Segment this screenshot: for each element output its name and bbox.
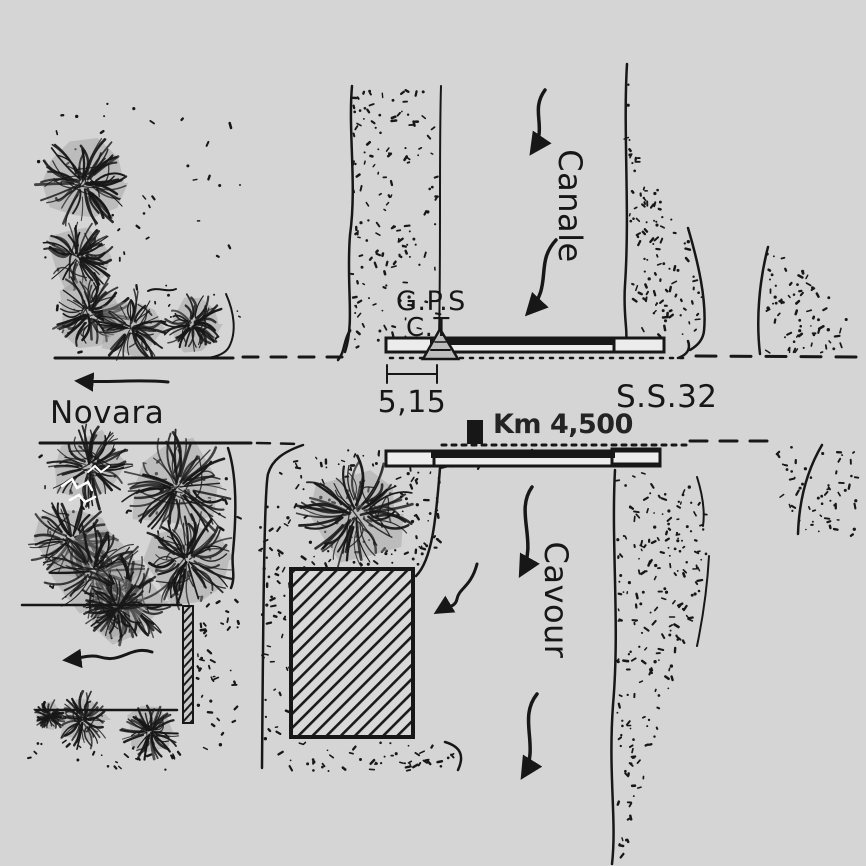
stipple-dot xyxy=(290,760,292,762)
stipple-dot xyxy=(644,571,646,573)
stipple-dot xyxy=(845,318,848,321)
stipple-dot xyxy=(379,194,381,195)
stipple-dot xyxy=(361,266,364,269)
stipple-dot xyxy=(363,118,365,120)
stipple-dot xyxy=(618,802,619,805)
stipple-dot xyxy=(799,325,802,328)
stipple-dot xyxy=(368,90,371,93)
stipple-dot xyxy=(408,745,410,747)
stipple-dot xyxy=(664,319,667,322)
stipple-dot xyxy=(677,538,679,540)
stipple-dot xyxy=(637,594,638,598)
stipple-dot xyxy=(653,312,655,314)
stipple-dot xyxy=(111,214,114,217)
stipple-dot xyxy=(798,329,801,332)
stipple-dot xyxy=(267,646,270,647)
stipple-dot xyxy=(648,719,650,721)
stipple-dot xyxy=(650,612,652,614)
stipple-dot xyxy=(402,245,404,247)
stipple-dot xyxy=(690,502,692,504)
stipple-dot xyxy=(681,502,682,504)
stipple-dot xyxy=(624,484,627,487)
stipple-dot xyxy=(834,529,838,530)
stipple-dot xyxy=(652,243,654,245)
stipple-dot xyxy=(367,142,370,144)
canal-name-bottom-label: Cavour xyxy=(537,542,575,659)
stipple-dot xyxy=(827,489,829,490)
stipple-dot xyxy=(270,596,273,599)
stipple-dot xyxy=(427,520,429,522)
stipple-dot xyxy=(644,299,646,300)
stipple-dot xyxy=(406,90,409,92)
stipple-dot xyxy=(775,320,776,323)
stipple-dot xyxy=(627,840,628,842)
bush-stroke xyxy=(35,183,73,184)
stipple-dot xyxy=(416,479,417,480)
stipple-dot xyxy=(425,211,427,214)
stipple-dot xyxy=(407,114,409,116)
stipple-dot xyxy=(623,535,625,537)
stipple-dot xyxy=(676,295,677,297)
stipple-dot xyxy=(282,635,283,638)
stipple-dot xyxy=(197,678,198,679)
stipple-dot xyxy=(143,212,146,215)
stipple-dot xyxy=(652,541,656,543)
stipple-dot xyxy=(676,532,678,534)
stipple-dot xyxy=(407,770,410,771)
stipple-dot xyxy=(655,304,657,306)
stipple-dot xyxy=(354,312,356,314)
stipple-dot xyxy=(40,743,42,745)
stipple-dot xyxy=(849,485,850,489)
stipple-dot xyxy=(654,291,655,295)
stipple-dot xyxy=(101,131,104,133)
stipple-dot xyxy=(677,506,680,508)
stipple-dot xyxy=(238,517,241,519)
stipple-dot xyxy=(789,504,790,507)
stipple-dot xyxy=(835,336,840,337)
stipple-dot xyxy=(628,581,631,584)
stipple-dot xyxy=(271,606,276,607)
stipple-dot xyxy=(360,564,361,565)
stipple-dot xyxy=(628,153,631,156)
stipple-dot xyxy=(353,297,356,298)
stipple-dot xyxy=(668,547,670,549)
stipple-dot xyxy=(676,269,679,272)
stipple-dot xyxy=(438,761,442,762)
stipple-dot xyxy=(211,677,212,678)
stipple-dot xyxy=(296,468,300,469)
stipple-dot xyxy=(678,604,682,606)
stipple-dot xyxy=(643,232,645,234)
stipple-dot xyxy=(362,455,364,457)
stipple-dot xyxy=(666,539,669,541)
stipple-dot xyxy=(629,139,631,141)
stipple-dot xyxy=(772,303,774,305)
stipple-dot xyxy=(406,767,410,768)
stipple-dot xyxy=(827,521,830,522)
stipple-dot xyxy=(387,262,388,266)
stipple-dot xyxy=(280,473,282,474)
stipple-dot xyxy=(395,752,398,755)
stipple-dot xyxy=(359,109,362,112)
stipple-dot xyxy=(408,162,410,163)
stipple-dot xyxy=(316,457,317,458)
stipple-dot xyxy=(675,635,677,637)
stipple-dot xyxy=(37,160,40,163)
stipple-dot xyxy=(826,345,827,349)
stipple-dot xyxy=(221,623,223,624)
stipple-dot xyxy=(438,514,439,518)
stipple-dot xyxy=(171,755,172,758)
stipple-dot xyxy=(677,570,679,572)
stipple-dot xyxy=(233,721,236,722)
stipple-dot xyxy=(648,277,651,280)
stipple-dot xyxy=(182,119,183,120)
stipple-dot xyxy=(265,716,267,718)
stipple-dot xyxy=(431,153,433,154)
stipple-dot xyxy=(827,328,830,331)
stipple-dot xyxy=(357,281,358,283)
stipple-dot xyxy=(638,787,641,788)
stipple-dot xyxy=(642,591,645,594)
stipple-dot xyxy=(674,548,677,551)
stipple-dot xyxy=(416,91,417,95)
stipple-dot xyxy=(230,670,232,672)
stipple-dot xyxy=(680,314,682,316)
stipple-dot xyxy=(377,148,379,150)
stipple-dot xyxy=(149,205,150,207)
stipple-dot xyxy=(662,262,665,265)
stipple-dot xyxy=(375,263,377,267)
stipple-dot xyxy=(654,202,655,206)
stipple-dot xyxy=(620,745,622,747)
stipple-dot xyxy=(435,198,436,200)
stipple-dot xyxy=(616,538,619,541)
stipple-dot xyxy=(658,694,661,697)
stipple-dot xyxy=(327,770,329,772)
stipple-dot xyxy=(286,711,289,712)
stipple-dot xyxy=(632,191,633,192)
stipple-dot xyxy=(628,818,630,819)
stipple-dot xyxy=(342,461,345,462)
stipple-dot xyxy=(642,473,645,474)
stipple-dot xyxy=(412,238,415,241)
stipple-dot xyxy=(630,214,631,216)
stipple-dot xyxy=(690,530,692,532)
stipple-dot xyxy=(350,753,353,754)
stipple-dot xyxy=(239,316,240,317)
stipple-dot xyxy=(643,197,645,199)
stipple-dot xyxy=(207,604,209,606)
stipple-dot xyxy=(370,156,372,157)
stipple-dot xyxy=(620,620,622,621)
stipple-dot xyxy=(653,192,656,195)
stipple-dot xyxy=(384,287,386,288)
stipple-dot xyxy=(647,292,649,295)
stipple-dot xyxy=(414,122,415,126)
stipple-dot xyxy=(832,347,835,350)
stipple-dot xyxy=(368,297,370,299)
stipple-dot xyxy=(630,728,632,730)
stipple-dot xyxy=(270,529,273,531)
stipple-dot xyxy=(375,127,377,129)
stipple-dot xyxy=(700,525,702,526)
stipple-dot xyxy=(198,666,199,668)
stipple-dot xyxy=(418,264,420,266)
stipple-dot xyxy=(644,271,646,273)
stipple-dot xyxy=(784,465,787,466)
stipple-dot xyxy=(404,147,406,149)
stipple-dot xyxy=(201,624,202,628)
stipple-dot xyxy=(807,311,810,312)
stipple-dot xyxy=(79,352,82,353)
stipple-dot xyxy=(773,255,775,257)
stipple-dot xyxy=(655,690,656,692)
stipple-dot xyxy=(294,461,298,462)
bush-stroke xyxy=(91,323,92,339)
stipple-dot xyxy=(796,311,797,315)
stipple-dot xyxy=(377,254,380,255)
stipple-dot xyxy=(357,332,360,334)
stipple-dot xyxy=(645,285,646,288)
stipple-dot xyxy=(405,497,408,500)
stipple-dot xyxy=(683,641,684,643)
stipple-dot xyxy=(287,668,288,671)
stipple-dot xyxy=(810,476,813,479)
stipple-dot xyxy=(827,296,830,299)
stipple-dot xyxy=(669,555,671,557)
stipple-dot xyxy=(417,472,419,474)
stipple-dot xyxy=(810,325,812,327)
stipple-dot xyxy=(431,186,434,189)
stipple-dot xyxy=(620,845,624,846)
stipple-dot xyxy=(419,148,421,149)
stipple-dot xyxy=(683,573,684,576)
stipple-dot xyxy=(667,688,669,690)
site-sketch-canvas: G.P.S C.T 5,15 S.S.32 Novara Km 4,500 Ca… xyxy=(0,0,866,866)
stipple-dot xyxy=(695,540,697,541)
stipple-dot xyxy=(796,283,799,286)
stipple-dot xyxy=(775,302,778,305)
stipple-dot xyxy=(627,694,629,696)
stipple-dot xyxy=(616,712,618,714)
stipple-dot xyxy=(447,757,450,760)
stipple-dot xyxy=(670,564,671,568)
stipple-dot xyxy=(697,291,700,294)
stipple-dot xyxy=(37,742,40,745)
stipple-dot xyxy=(357,346,359,347)
stipple-dot xyxy=(398,254,400,256)
stipple-dot xyxy=(421,548,425,549)
stipple-dot xyxy=(428,188,431,191)
stipple-dot xyxy=(774,296,777,299)
stipple-dot xyxy=(209,666,210,669)
stipple-dot xyxy=(664,493,667,496)
stipple-dot xyxy=(695,329,697,330)
stipple-dot xyxy=(656,189,659,192)
stipple-dot xyxy=(646,745,648,746)
stipple-dot xyxy=(643,717,645,718)
hatched-building xyxy=(291,569,413,737)
stipple-dot xyxy=(276,574,278,575)
canal-name-top-label: Canale xyxy=(551,149,589,262)
stipple-dot xyxy=(347,449,349,451)
stipple-dot xyxy=(619,574,622,577)
stipple-dot xyxy=(632,749,633,753)
stipple-dot xyxy=(668,268,670,270)
stipple-dot xyxy=(692,276,694,278)
stipple-dot xyxy=(618,581,620,583)
stipple-dot xyxy=(616,480,619,481)
stipple-dot xyxy=(360,255,363,256)
stipple-dot xyxy=(401,494,403,495)
stipple-dot xyxy=(380,762,382,764)
stipple-dot xyxy=(76,759,79,762)
stipple-dot xyxy=(389,195,390,197)
stipple-dot xyxy=(638,558,640,560)
stipple-dot xyxy=(201,630,205,631)
stipple-dot xyxy=(405,226,410,227)
stipple-dot xyxy=(363,92,364,94)
stipple-dot xyxy=(809,507,810,509)
stipple-dot xyxy=(165,285,167,287)
stipple-dot xyxy=(434,223,436,225)
stipple-dot xyxy=(682,333,684,335)
stipple-dot xyxy=(649,561,651,565)
stipple-dot xyxy=(397,230,400,231)
stipple-dot xyxy=(681,300,682,301)
stipple-dot xyxy=(353,111,356,114)
stipple-dot xyxy=(383,254,384,256)
stipple-dot xyxy=(641,572,644,574)
stipple-dot xyxy=(784,336,786,338)
stipple-dot xyxy=(391,195,392,197)
stipple-dot xyxy=(222,733,223,735)
stipple-dot xyxy=(391,562,393,564)
stipple-dot xyxy=(106,103,108,105)
stipple-dot xyxy=(635,207,637,208)
stipple-dot xyxy=(212,724,214,726)
stipple-dot xyxy=(669,668,670,670)
ct-station-label: C.T xyxy=(406,313,450,343)
stipple-dot xyxy=(279,553,280,556)
stipple-dot xyxy=(790,446,793,449)
stipple-dot xyxy=(670,287,671,291)
stipple-dot xyxy=(354,134,355,137)
stipple-dot xyxy=(666,532,667,535)
stipple-dot xyxy=(853,528,856,531)
stipple-dot xyxy=(692,301,693,304)
stipple-dot xyxy=(208,176,209,180)
stipple-dot xyxy=(361,186,362,191)
stipple-dot xyxy=(655,221,657,223)
stipple-dot xyxy=(820,515,821,516)
stipple-dot xyxy=(803,347,805,349)
stipple-dot xyxy=(649,492,651,494)
stipple-dot xyxy=(855,477,859,478)
stipple-dot xyxy=(813,317,814,319)
stipple-dot xyxy=(796,301,799,303)
stipple-dot xyxy=(663,587,666,590)
stipple-dot xyxy=(213,294,215,296)
stipple-dot xyxy=(217,256,219,257)
stipple-dot xyxy=(277,567,279,569)
km-stone-icon xyxy=(467,420,483,444)
stipple-dot xyxy=(204,631,206,633)
stipple-dot xyxy=(354,338,356,340)
stipple-dot xyxy=(56,131,57,135)
stipple-dot xyxy=(354,163,356,165)
stipple-dot xyxy=(659,201,662,204)
stipple-dot xyxy=(817,294,819,297)
stipple-dot xyxy=(799,487,802,490)
stipple-dot xyxy=(167,294,170,297)
stipple-dot xyxy=(791,510,793,512)
stipple-dot xyxy=(705,553,708,556)
stipple-dot xyxy=(429,512,432,515)
stipple-dot xyxy=(268,576,271,579)
stipple-dot xyxy=(684,309,686,310)
stipple-dot xyxy=(820,495,823,498)
stipple-dot xyxy=(821,452,824,455)
stipple-dot xyxy=(830,526,831,528)
stipple-dot xyxy=(817,497,820,500)
stipple-dot xyxy=(170,316,172,318)
stipple-dot xyxy=(264,737,267,740)
stipple-dot xyxy=(407,472,410,475)
stipple-dot xyxy=(327,550,329,552)
stipple-dot xyxy=(622,838,623,841)
stipple-dot xyxy=(306,762,309,765)
stipple-dot xyxy=(312,763,314,765)
stipple-dot xyxy=(669,529,670,530)
stipple-dot xyxy=(655,224,658,227)
stipple-dot xyxy=(259,526,262,529)
stipple-dot xyxy=(325,466,327,468)
stipple-dot xyxy=(400,256,402,257)
stipple-dot xyxy=(850,475,853,478)
stipple-dot xyxy=(286,516,289,519)
stipple-dot xyxy=(623,661,628,662)
stipple-dot xyxy=(638,646,640,648)
stipple-dot xyxy=(694,592,697,595)
stipple-dot xyxy=(264,699,266,701)
stipple-dot xyxy=(625,536,626,539)
stipple-dot xyxy=(657,255,658,257)
stipple-dot xyxy=(267,623,271,624)
stipple-dot xyxy=(364,107,367,110)
stipple-dot xyxy=(775,285,777,287)
stipple-dot xyxy=(619,704,620,708)
stipple-dot xyxy=(375,462,378,465)
stipple-dot xyxy=(668,634,671,637)
stipple-dot xyxy=(394,549,396,551)
stipple-dot xyxy=(406,244,408,246)
stipple-dot xyxy=(329,560,331,562)
stipple-dot xyxy=(327,749,329,751)
stipple-dot xyxy=(392,326,395,327)
stipple-dot xyxy=(633,795,635,797)
stipple-dot xyxy=(392,332,393,336)
stipple-dot xyxy=(812,521,814,523)
stipple-dot xyxy=(234,682,235,684)
stipple-dot xyxy=(646,221,648,223)
stipple-dot xyxy=(821,352,823,353)
stipple-dot xyxy=(697,314,698,315)
stipple-dot xyxy=(643,258,645,260)
stipple-dot xyxy=(641,541,642,546)
